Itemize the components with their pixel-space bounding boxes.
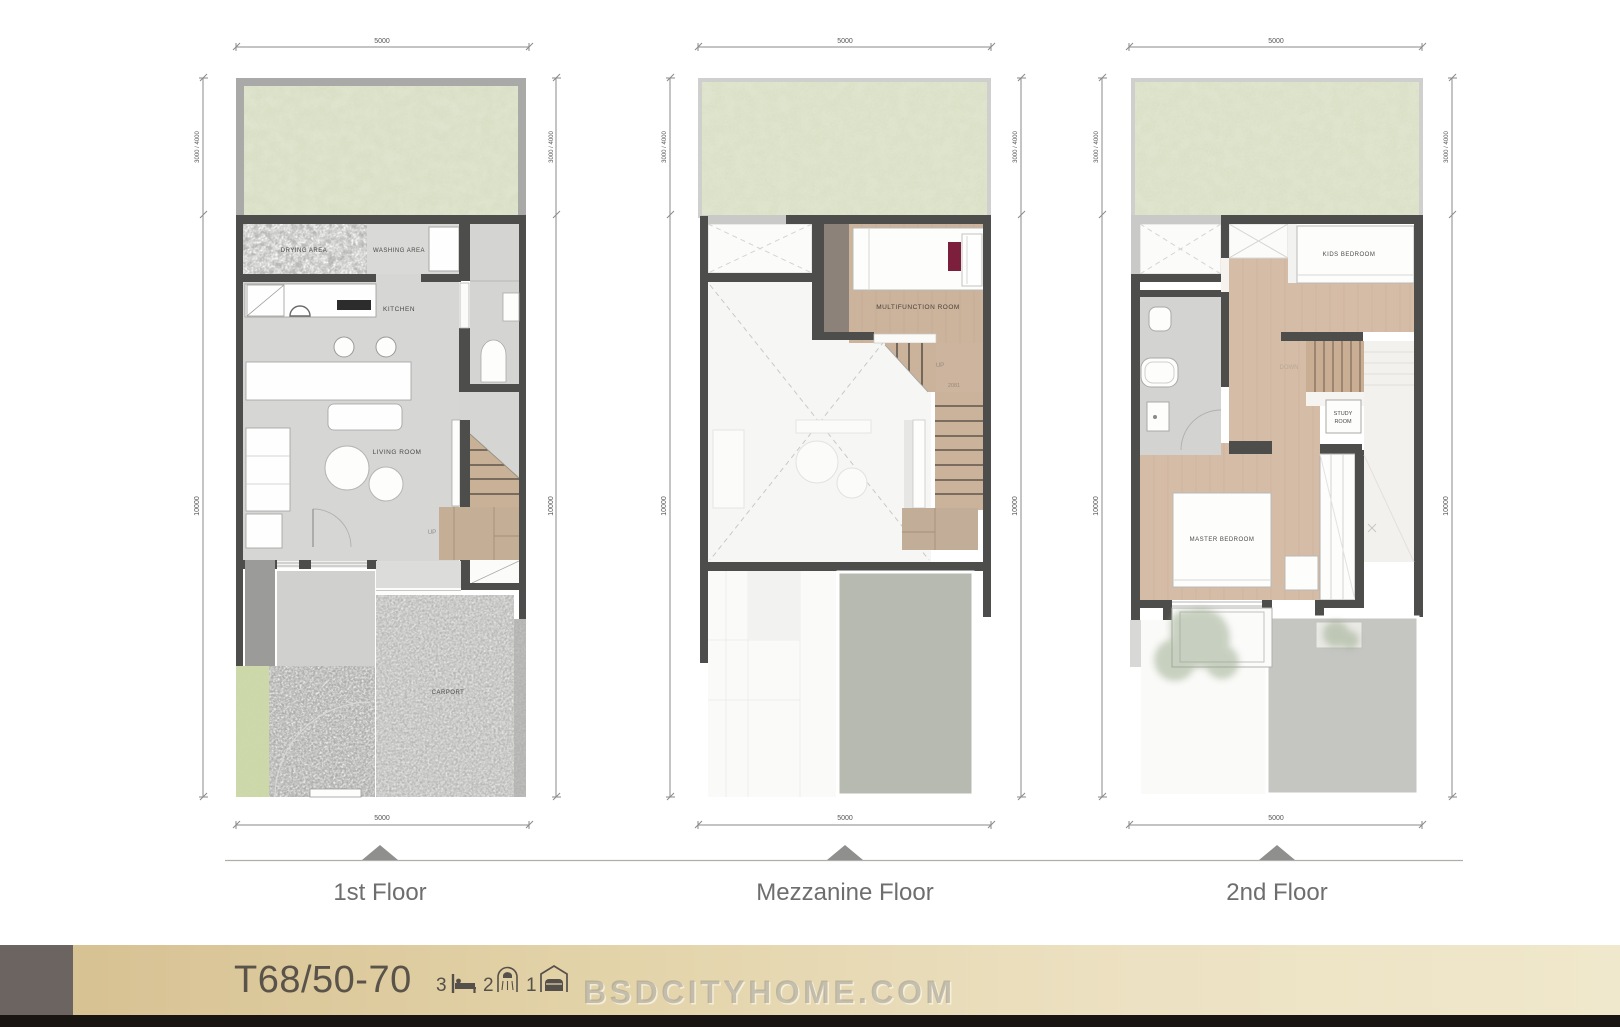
- svg-text:KIDS BEDROOM: KIDS BEDROOM: [1323, 252, 1376, 258]
- svg-text:Mezzanine Floor: Mezzanine Floor: [756, 879, 933, 906]
- svg-text:WASHING AREA: WASHING AREA: [373, 248, 425, 254]
- svg-text:10000: 10000: [548, 496, 555, 516]
- svg-text:STUDY: STUDY: [1334, 411, 1353, 417]
- svg-text:LIVING ROOM: LIVING ROOM: [373, 449, 422, 456]
- svg-text:1st Floor: 1st Floor: [333, 879, 426, 906]
- svg-text:10000: 10000: [661, 496, 668, 516]
- svg-text:ROOM: ROOM: [1334, 419, 1352, 425]
- svg-text:2nd Floor: 2nd Floor: [1226, 879, 1327, 906]
- svg-text:3000 / 4000: 3000 / 4000: [662, 130, 668, 162]
- svg-text:UP: UP: [936, 363, 944, 369]
- svg-text:5000: 5000: [374, 815, 390, 822]
- svg-text:5000: 5000: [374, 38, 390, 45]
- svg-text:5000: 5000: [837, 38, 853, 45]
- svg-text:5000: 5000: [837, 815, 853, 822]
- svg-text:3: 3: [436, 975, 447, 996]
- svg-text:DRYING AREA: DRYING AREA: [281, 248, 327, 254]
- svg-text:3000 / 4000: 3000 / 4000: [1444, 130, 1450, 162]
- svg-text:DOWN: DOWN: [1280, 365, 1299, 371]
- svg-text:5000: 5000: [1268, 38, 1284, 45]
- svg-text:T68/50-70: T68/50-70: [234, 959, 412, 1001]
- svg-text:2: 2: [483, 975, 494, 996]
- svg-text:10000: 10000: [1443, 496, 1450, 516]
- svg-text:3000 / 4000: 3000 / 4000: [549, 130, 555, 162]
- svg-text:KITCHEN: KITCHEN: [383, 306, 415, 313]
- svg-text:MULTIFUNCTION ROOM: MULTIFUNCTION ROOM: [876, 304, 960, 311]
- svg-text:UP: UP: [428, 530, 436, 536]
- svg-text:1: 1: [526, 975, 537, 996]
- svg-text:3000 / 4000: 3000 / 4000: [195, 130, 201, 162]
- svg-text:3000 / 4000: 3000 / 4000: [1094, 130, 1100, 162]
- svg-text:CARPORT: CARPORT: [432, 690, 465, 696]
- svg-text:10000: 10000: [1012, 496, 1019, 516]
- svg-text:BSDCITYHOME.COM: BSDCITYHOME.COM: [583, 974, 956, 1010]
- svg-text:5000: 5000: [1268, 815, 1284, 822]
- svg-text:3000 / 4000: 3000 / 4000: [1013, 130, 1019, 162]
- svg-text:MASTER BEDROOM: MASTER BEDROOM: [1190, 537, 1255, 543]
- svg-text:2081: 2081: [948, 383, 960, 389]
- svg-text:10000: 10000: [1093, 496, 1100, 516]
- svg-text:10000: 10000: [194, 496, 201, 516]
